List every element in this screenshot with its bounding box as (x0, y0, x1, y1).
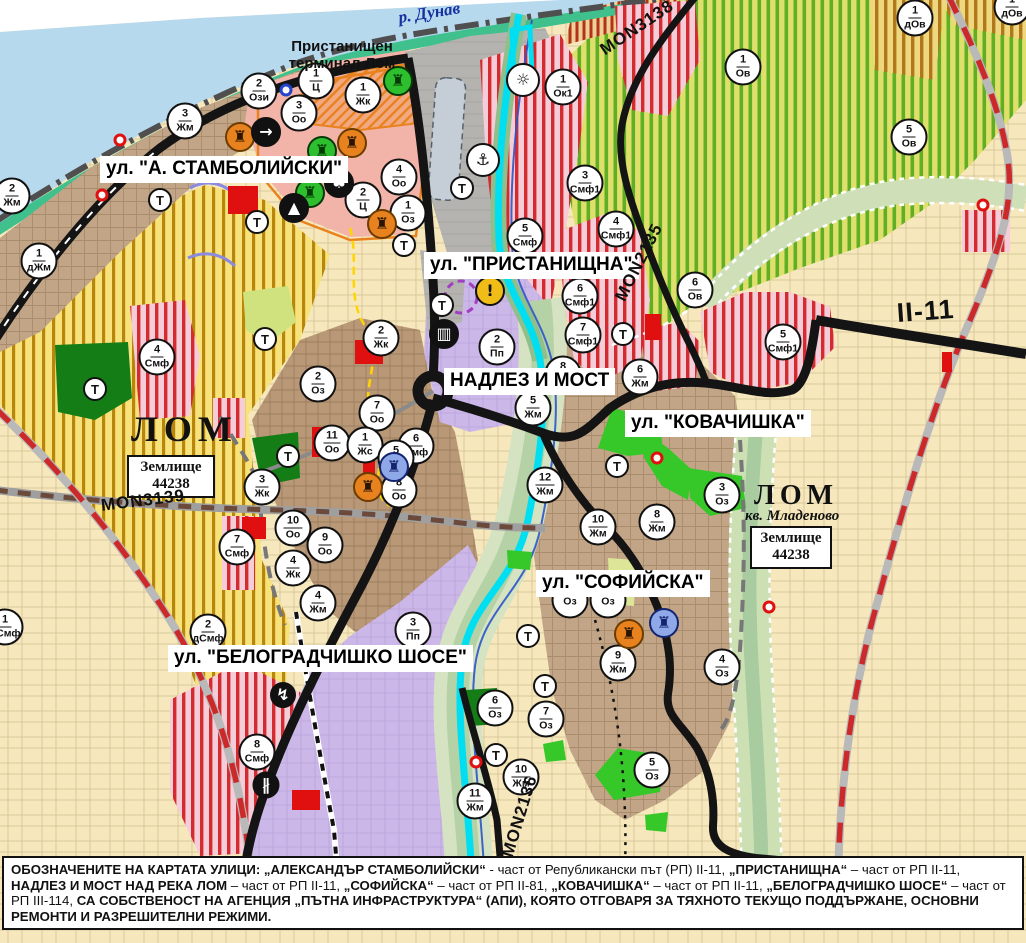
transport-marker: Т (516, 624, 540, 648)
zone-marker: 1Ц (298, 63, 335, 100)
zone-number: 8 (251, 740, 263, 753)
transport-marker: Т (450, 176, 474, 200)
zone-marker: 4Жк (275, 550, 312, 587)
zone-marker: 4Оо (381, 159, 418, 196)
zone-marker: 5Ов (891, 119, 928, 156)
zone-code: дСмф (192, 633, 223, 645)
zone-marker: 1Ов (725, 49, 762, 86)
zone-code: Оз (715, 668, 728, 680)
zone-number: 7 (577, 323, 589, 336)
monument-icon: ♜ (367, 209, 397, 239)
zone-marker: 11Оо (314, 425, 351, 462)
zone-number: 6 (634, 365, 646, 378)
zone-code: Жм (176, 122, 193, 134)
zone-marker: 9Жм (600, 645, 637, 682)
zone-code: Жк (255, 488, 270, 500)
transport-marker: Т (484, 743, 508, 767)
zone-marker: 4Смф (139, 339, 176, 376)
zone-code: Ц (312, 82, 320, 94)
monument-icon: ♜ (649, 608, 679, 638)
zone-code: Смф (225, 548, 249, 560)
zone-marker: 10Жм (503, 759, 540, 796)
zone-code: Жм (466, 802, 483, 814)
zone-code: Смф (245, 753, 269, 765)
lightning-icon: ↯ (270, 682, 296, 708)
zone-marker: 9Оо (307, 527, 344, 564)
zone-code: дОв (904, 19, 925, 31)
zone-code: дСмф (0, 628, 21, 640)
transport-marker: Т (83, 377, 107, 401)
zone-number: 2 (312, 372, 324, 385)
zone-code: Смф1 (568, 336, 598, 348)
zone-code: Ов (736, 68, 751, 80)
monument-icon: ♜ (614, 619, 644, 649)
zone-code: Жк (286, 569, 301, 581)
zone-number: 7 (231, 535, 243, 548)
zone-number: 4 (151, 345, 163, 358)
zone-code: Жм (524, 409, 541, 421)
footnote-segment: „БЕЛОГРАДЧИШКО ШОСЕ“ (766, 878, 947, 893)
zone-number: 6 (689, 278, 701, 291)
zone-marker: 3Жк (244, 469, 281, 506)
zone-marker: 1дОв (897, 0, 934, 37)
transport-marker: Т (611, 322, 635, 346)
transport-marker: Т (605, 454, 629, 478)
zone-code: Жм (631, 378, 648, 390)
zone-code: Жм (589, 528, 606, 540)
zone-number: 2 (202, 620, 214, 633)
footnote-segment: „СОФИЙСКА“ (344, 878, 434, 893)
zone-number: 9 (612, 651, 624, 664)
zone-number: 2 (375, 326, 387, 339)
zone-number: 4 (610, 217, 622, 230)
monument-icon: ♜ (307, 136, 337, 166)
footnote-segment: – част от РП II-11, (847, 862, 960, 877)
zone-number: 4 (716, 655, 728, 668)
zone-marker: 6Жм (622, 359, 659, 396)
zone-marker: 1дЖм (21, 243, 58, 280)
zone-marker: 3Пп (395, 612, 432, 649)
zone-marker: 2Оз (300, 366, 337, 403)
zone-number: 2 (253, 79, 265, 92)
zone-code: Жм (512, 778, 529, 790)
zone-code: Оз (539, 720, 552, 732)
zone-marker: 1дОв (994, 0, 1026, 26)
transport-marker: Т (253, 327, 277, 351)
footnote-segment: „КОВАЧИШКА“ (551, 878, 649, 893)
zone-marker: 7Смф1 (565, 317, 602, 354)
footnote-segment: – част от РП II-81, (434, 878, 552, 893)
zone-marker: Оз (590, 582, 627, 619)
zone-number: 2 (357, 188, 369, 201)
zone-marker: 8Смф (239, 734, 276, 771)
footnote-segment: – част от РП II-11, (650, 878, 767, 893)
zone-number: 2 (491, 335, 503, 348)
monument-icon: ♜ (337, 128, 367, 158)
zone-code: Жм (3, 197, 20, 209)
monument-icon: ♜ (353, 472, 383, 502)
zone-marker: 3Оо (281, 95, 318, 132)
zone-number: 3 (293, 101, 305, 114)
zone-code: Смф (513, 237, 537, 249)
zone-marker: 3Оз (704, 477, 741, 514)
zone-code: Жк (356, 96, 371, 108)
zone-marker: 5Оз (634, 752, 671, 789)
zone-number: 12 (536, 473, 554, 486)
zone-code: Пп (490, 348, 504, 360)
transport-marker: Т (148, 188, 172, 212)
zone-number: 3 (179, 109, 191, 122)
zone-marker: 8Жм (545, 356, 582, 393)
zone-number: 1 (402, 201, 414, 214)
zone-code: Ов (902, 138, 917, 150)
zone-number: 4 (287, 556, 299, 569)
zone-code: Оз (645, 771, 658, 783)
zone-number: 8 (557, 362, 569, 375)
zone-code: Оо (392, 491, 407, 503)
warning-icon: ! (475, 276, 505, 306)
monument-icon: ♜ (379, 452, 409, 482)
zone-code: Оо (318, 546, 333, 558)
zone-number: 3 (256, 475, 268, 488)
zone-code: Ц (359, 201, 367, 213)
point-marker (114, 134, 127, 147)
anchor-port-icon: ⚓ (466, 143, 500, 177)
footnote-segment: НАДЛЕЗ И МОСТ НАД РЕКА ЛОМ (11, 878, 227, 893)
zone-number: 1 (557, 75, 569, 88)
zone-number: 3 (716, 483, 728, 496)
zone-number: 9 (319, 533, 331, 546)
zone-code: Оо (370, 414, 385, 426)
zone-marker: 2дСмф (190, 614, 227, 651)
transport-marker: Т (392, 233, 416, 257)
point-marker (96, 189, 109, 202)
footnote-segment: СА СОБСТВЕНОСТ НА АГЕНЦИЯ „ПЪТНА ИНФРАСТ… (11, 893, 979, 924)
point-marker (470, 756, 483, 769)
zone-number: 6 (489, 696, 501, 709)
zone-code: Оз (601, 595, 614, 607)
zone-number: 1 (737, 55, 749, 68)
zone-number: 7 (371, 401, 383, 414)
zone-marker: 6Ов (677, 272, 714, 309)
point-marker (763, 601, 776, 614)
zone-marker: 4Оз (704, 649, 741, 686)
zone-number: 1 (909, 6, 921, 19)
zone-number: 5 (519, 224, 531, 237)
monument-icon: ♜ (225, 122, 255, 152)
zone-code: Оз (563, 595, 576, 607)
map-footnote: ОБОЗНАЧЕНИТЕ НА КАРТАТА УЛИЦИ: „АЛЕКСАНД… (2, 856, 1024, 930)
circle-arrow-icon: → (251, 117, 281, 147)
zone-number: 3 (579, 171, 591, 184)
zone-code: Ов (688, 291, 703, 303)
zone-number: 8 (651, 510, 663, 523)
transport-marker: Т (533, 674, 557, 698)
zone-number: 10 (589, 515, 607, 528)
transport-marker: Т (430, 293, 454, 317)
zone-code: Оо (325, 444, 340, 456)
zone-marker: 1дСмф (0, 609, 24, 646)
zone-code: Жм (536, 486, 553, 498)
zone-number: 4 (312, 591, 324, 604)
point-marker (977, 199, 990, 212)
zone-code: Смф1 (768, 343, 798, 355)
zone-code: Оо (292, 114, 307, 126)
point-marker (651, 452, 664, 465)
footnote-segment: – част от РП II-11, (227, 878, 344, 893)
zone-code: Жм (309, 604, 326, 616)
zone-number: 10 (284, 516, 302, 529)
zone-code: Жм (609, 664, 626, 676)
mound-icon: ▲ (279, 193, 309, 223)
zone-number: 10 (512, 765, 530, 778)
zone-number: 11 (466, 789, 484, 802)
zone-marker: 2Жм (0, 178, 31, 215)
zone-marker: 5Смф (507, 218, 544, 255)
footnote-segment: „ПРИСТАНИЩНА“ (729, 862, 847, 877)
zone-marker: 4Смф1 (598, 211, 635, 248)
zone-marker: 4Жм (300, 585, 337, 622)
marker-layer: 3Жм2Ози1Ц3Оо1Жк2Жм1дЖм4Оо2Ц1Оз1Ок15Смф3С… (0, 0, 1026, 943)
zone-number: 1 (357, 83, 369, 96)
zone-marker: 1Ок1 (545, 69, 582, 106)
zone-marker: Оз (552, 582, 589, 619)
zone-code: дЖм (27, 262, 51, 274)
zone-code: дОв (1001, 8, 1022, 20)
zone-number: 1 (0, 615, 11, 628)
zone-code: Оз (715, 496, 728, 508)
zone-number: 4 (393, 165, 405, 178)
zone-number: 1 (310, 69, 322, 82)
zone-code: Оз (401, 214, 414, 226)
zone-marker: 12Жм (527, 467, 564, 504)
zone-code: Смф1 (601, 230, 631, 242)
zone-number: 2 (6, 184, 18, 197)
zone-marker: 6Оз (477, 690, 514, 727)
zone-code: Оз (488, 709, 501, 721)
zone-marker: 7Смф (219, 529, 256, 566)
zone-code: Оз (311, 385, 324, 397)
zone-code: Смф1 (570, 184, 600, 196)
footnote-segment: ОБОЗНАЧЕНИТЕ НА КАРТАТА УЛИЦИ: „АЛЕКСАНД… (11, 862, 486, 877)
zone-marker: 5Жм (515, 390, 552, 427)
map-canvas[interactable]: 3Жм2Ози1Ц3Оо1Жк2Жм1дЖм4Оо2Ц1Оз1Ок15Смф3С… (0, 0, 1026, 943)
point-marker (280, 84, 293, 97)
zone-code: Оо (286, 529, 301, 541)
zone-marker: 2Ози (241, 73, 278, 110)
zone-number: 5 (646, 758, 658, 771)
fan-icon: ☼ (506, 63, 540, 97)
zone-marker: 2Жк (363, 320, 400, 357)
transport-marker: Т (276, 444, 300, 468)
zone-number: 5 (903, 125, 915, 138)
zone-marker: 3Жм (167, 103, 204, 140)
zone-marker: 7Оз (528, 701, 565, 738)
transport-marker: Т (245, 210, 269, 234)
zone-marker: 3Смф1 (567, 165, 604, 202)
zone-code: Пп (406, 631, 420, 643)
zone-code: Ок1 (553, 88, 572, 100)
zone-marker: 11Жм (457, 783, 494, 820)
zone-number: 3 (407, 618, 419, 631)
zone-code: Смф1 (565, 297, 595, 309)
zone-code: Жк (374, 339, 389, 351)
zone-code: Ози (249, 92, 269, 104)
zone-marker: 8Жм (639, 504, 676, 541)
zone-number: 5 (527, 396, 539, 409)
zone-marker: 5Смф1 (765, 324, 802, 361)
footnote-segment: - част от Републикански път (РП) II-11, (486, 862, 729, 877)
zone-number: 1 (33, 249, 45, 262)
zone-marker: 1Жк (345, 77, 382, 114)
zone-code: Оо (392, 178, 407, 190)
zone-code: Смф (145, 358, 169, 370)
zone-number: 11 (323, 431, 341, 444)
zone-code: Жс (357, 446, 372, 458)
zone-number: 1 (1006, 0, 1018, 8)
trefoil-icon: ♣ (324, 168, 354, 198)
zone-number: 5 (777, 330, 789, 343)
truck-terminal-icon: ▥ (429, 319, 459, 349)
monument-icon: ♜ (383, 66, 413, 96)
zone-marker: 6Смф1 (562, 278, 599, 315)
zone-code: Жм (554, 375, 571, 387)
zone-marker: 2Пп (479, 329, 516, 366)
zone-number: 6 (574, 284, 586, 297)
zone-number: 1 (359, 433, 371, 446)
zone-marker: 10Жм (580, 509, 617, 546)
zone-code: Жм (648, 523, 665, 535)
zone-number: 6 (410, 434, 422, 447)
zone-number: 7 (540, 707, 552, 720)
railway-crossing-icon: ∦ (253, 772, 280, 799)
